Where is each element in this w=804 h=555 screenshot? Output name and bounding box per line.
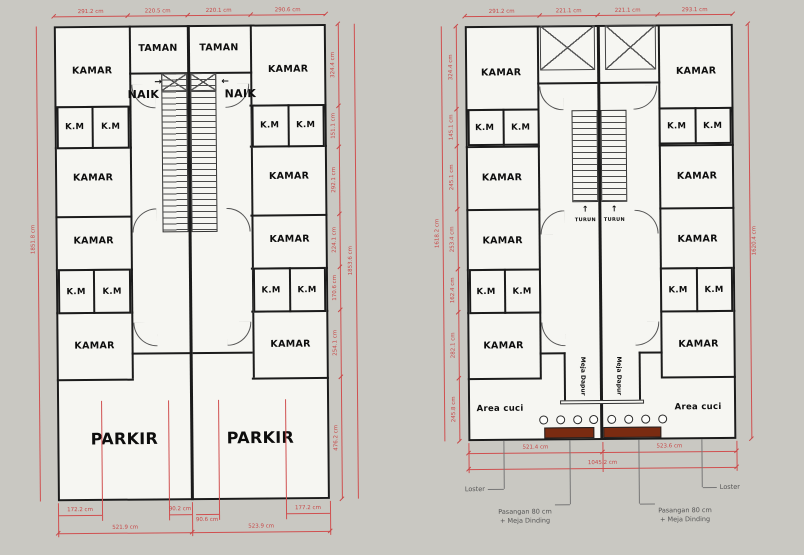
wall bbox=[639, 351, 663, 353]
wash-circle bbox=[539, 415, 548, 424]
leader-line bbox=[555, 504, 570, 505]
km-label: K.M bbox=[297, 285, 316, 295]
km-label: K.M bbox=[703, 121, 722, 131]
leader-line bbox=[701, 439, 702, 487]
wall bbox=[93, 269, 95, 314]
stair-winder bbox=[190, 73, 216, 91]
kamar-label: KAMAR bbox=[677, 170, 717, 181]
wall bbox=[696, 267, 698, 312]
kamar-label: KAMAR bbox=[73, 235, 113, 246]
kamar-label: KAMAR bbox=[481, 67, 521, 78]
dim-label: 1045.2 cm bbox=[588, 460, 617, 466]
parkir-label: PARKIR bbox=[227, 428, 295, 448]
dim-line bbox=[58, 515, 102, 516]
dim-label: 220.1 cm bbox=[206, 8, 232, 14]
dim-label: 1618.2 cm bbox=[434, 219, 440, 248]
wall bbox=[287, 104, 289, 147]
km-label: K.M bbox=[512, 287, 531, 297]
naik-label: NAIK bbox=[225, 87, 257, 100]
dim-label: 290.6 cm bbox=[275, 7, 301, 13]
km-label: K.M bbox=[704, 285, 723, 295]
km-label: K.M bbox=[260, 120, 279, 130]
km-label: K.M bbox=[66, 287, 85, 297]
stair-winder bbox=[161, 73, 187, 91]
dim-label: 170.6 cm bbox=[332, 275, 338, 301]
wall bbox=[540, 352, 566, 354]
dim-label: 291.2 cm bbox=[78, 9, 104, 15]
wash-circle bbox=[607, 415, 616, 424]
dim-label: 324.4 cm bbox=[448, 54, 454, 80]
area-cuci-label: Area cuci bbox=[675, 402, 722, 412]
wash-circle bbox=[641, 415, 650, 424]
kamar-label: KAMAR bbox=[483, 340, 523, 351]
dim-line bbox=[196, 514, 219, 515]
wash-circle bbox=[556, 415, 565, 424]
kamar-label: KAMAR bbox=[74, 340, 114, 351]
dim-tick bbox=[339, 496, 344, 501]
turun-label: TURUN bbox=[604, 217, 625, 223]
kamar-label: KAMAR bbox=[482, 172, 522, 183]
kamar-label: KAMAR bbox=[269, 171, 309, 182]
dim-line bbox=[169, 514, 192, 515]
dim-label: 523.9 cm bbox=[248, 523, 274, 529]
dim-label: 221.1 cm bbox=[556, 8, 582, 14]
km-label: K.M bbox=[101, 122, 120, 132]
pasangan-label: Pasangan 80 cm bbox=[658, 506, 712, 514]
kamar-label: KAMAR bbox=[73, 172, 113, 183]
dim-label: 220.5 cm bbox=[145, 8, 171, 14]
up-arrow: → bbox=[154, 77, 162, 87]
pasangan-label: + Meja Dinding bbox=[660, 515, 710, 523]
km-label: K.M bbox=[668, 285, 687, 295]
void-box bbox=[540, 25, 595, 70]
dim-label: 476.2 cm bbox=[333, 425, 339, 451]
dim-label: 291.2 cm bbox=[489, 9, 515, 15]
wall bbox=[91, 106, 93, 149]
dim-label: 292.1 cm bbox=[331, 167, 337, 193]
dim-label: 245.1 cm bbox=[449, 164, 455, 190]
dim-tick bbox=[457, 439, 462, 444]
dim-line bbox=[58, 531, 330, 534]
wall bbox=[564, 352, 566, 402]
leader-line bbox=[640, 504, 655, 505]
dim-label: 1853.6 cm bbox=[348, 246, 354, 275]
stairs-down bbox=[600, 110, 627, 202]
kamar-label: KAMAR bbox=[482, 235, 522, 246]
wash-circle bbox=[589, 415, 598, 424]
dim-label: 90.6 cm bbox=[196, 517, 218, 523]
km-label: K.M bbox=[65, 122, 84, 132]
wash-circle bbox=[573, 415, 582, 424]
dim-label: 521.9 cm bbox=[112, 525, 138, 531]
pasangan-label: Pasangan 80 cm bbox=[498, 507, 552, 515]
stairs-up bbox=[161, 73, 188, 232]
dim-tick bbox=[323, 11, 328, 16]
loster-label: Loster bbox=[720, 483, 740, 491]
dim-tick bbox=[730, 11, 735, 16]
leader-line bbox=[503, 441, 504, 489]
floorplan-drawing: TAMAN TAMAN KAMAR KAMAR KAMAR KAMAR KAMA… bbox=[0, 0, 804, 555]
km-label: K.M bbox=[667, 121, 686, 131]
area-cuci-label: Area cuci bbox=[477, 404, 524, 414]
dim-label: 523.6 cm bbox=[656, 443, 682, 449]
turun-label: TURUN bbox=[575, 217, 596, 223]
meja-dapur-label: Meja Dapur bbox=[615, 356, 622, 395]
wall bbox=[694, 107, 696, 144]
dim-label: 282.1 cm bbox=[450, 332, 456, 358]
dim-label: 1851.8 cm bbox=[31, 225, 37, 254]
wash-circle bbox=[658, 414, 667, 423]
kamar-label: KAMAR bbox=[676, 65, 716, 76]
dim-label: 172.2 cm bbox=[67, 507, 93, 513]
dim-label: 90.2 cm bbox=[169, 506, 191, 512]
wall bbox=[639, 352, 641, 402]
kitchen-table bbox=[560, 400, 644, 405]
wall bbox=[502, 109, 504, 146]
leader-line bbox=[569, 440, 571, 504]
wall bbox=[289, 267, 291, 312]
pasangan-label: + Meja Dinding bbox=[500, 516, 550, 524]
dim-label: 293.1 cm bbox=[682, 7, 708, 13]
meja-dapur-label: Meja Dapur bbox=[579, 357, 586, 396]
dim-label: 254.1 cm bbox=[332, 330, 338, 356]
stairs-down bbox=[571, 110, 598, 202]
dim-label: 253.4 cm bbox=[450, 226, 456, 252]
km-label: K.M bbox=[475, 123, 494, 133]
floor1-plan: TAMAN TAMAN KAMAR KAMAR KAMAR KAMAR KAMA… bbox=[36, 9, 376, 552]
up-arrow: ↑ bbox=[611, 204, 618, 213]
stairs-up bbox=[190, 73, 217, 232]
dim-label: 521.4 cm bbox=[522, 444, 548, 450]
kamar-label: KAMAR bbox=[678, 338, 718, 349]
up-arrow: ← bbox=[221, 77, 229, 87]
dim-label: 151.1 cm bbox=[331, 113, 337, 139]
taman-label: TAMAN bbox=[138, 43, 177, 54]
floor2-plan: ↑ ↑ TURUN TURUN Meja Dapur Meja Dapur Ar… bbox=[423, 8, 778, 555]
leader-line bbox=[488, 489, 504, 490]
km-label: K.M bbox=[511, 123, 530, 133]
wash-circle bbox=[624, 415, 633, 424]
dim-label: 145.1 cm bbox=[449, 114, 455, 140]
dim-line bbox=[441, 26, 446, 441]
leader-line bbox=[638, 440, 640, 504]
dim-line bbox=[354, 24, 359, 499]
naik-label: NAIK bbox=[128, 88, 160, 101]
dim-label: 162.4 cm bbox=[450, 277, 456, 303]
wall bbox=[504, 269, 506, 314]
dim-label: 177.2 cm bbox=[295, 505, 321, 511]
void-box bbox=[605, 25, 656, 70]
km-label: K.M bbox=[296, 120, 315, 130]
kamar-label: KAMAR bbox=[268, 64, 308, 75]
dim-label: 324.4 cm bbox=[330, 52, 336, 78]
dim-label: 224.1 cm bbox=[332, 227, 338, 253]
kamar-label: KAMAR bbox=[270, 339, 310, 350]
dim-line bbox=[36, 26, 41, 501]
counter bbox=[544, 427, 594, 438]
leader-line bbox=[703, 487, 717, 488]
dim-line bbox=[286, 513, 330, 514]
up-arrow: ↑ bbox=[582, 205, 589, 214]
km-label: K.M bbox=[476, 287, 495, 297]
kamar-label: KAMAR bbox=[269, 234, 309, 245]
km-label: K.M bbox=[261, 285, 280, 295]
kamar-label: KAMAR bbox=[72, 65, 112, 76]
dim-label: 1620.4 cm bbox=[752, 226, 758, 255]
km-label: K.M bbox=[102, 287, 121, 297]
taman-label: TAMAN bbox=[199, 42, 238, 53]
dim-label: 221.1 cm bbox=[615, 8, 641, 14]
dim-tick bbox=[749, 436, 754, 441]
dim-label: 245.8 cm bbox=[451, 396, 457, 422]
kamar-label: KAMAR bbox=[677, 233, 717, 244]
loster-label: Loster bbox=[465, 485, 485, 493]
counter bbox=[603, 426, 661, 438]
